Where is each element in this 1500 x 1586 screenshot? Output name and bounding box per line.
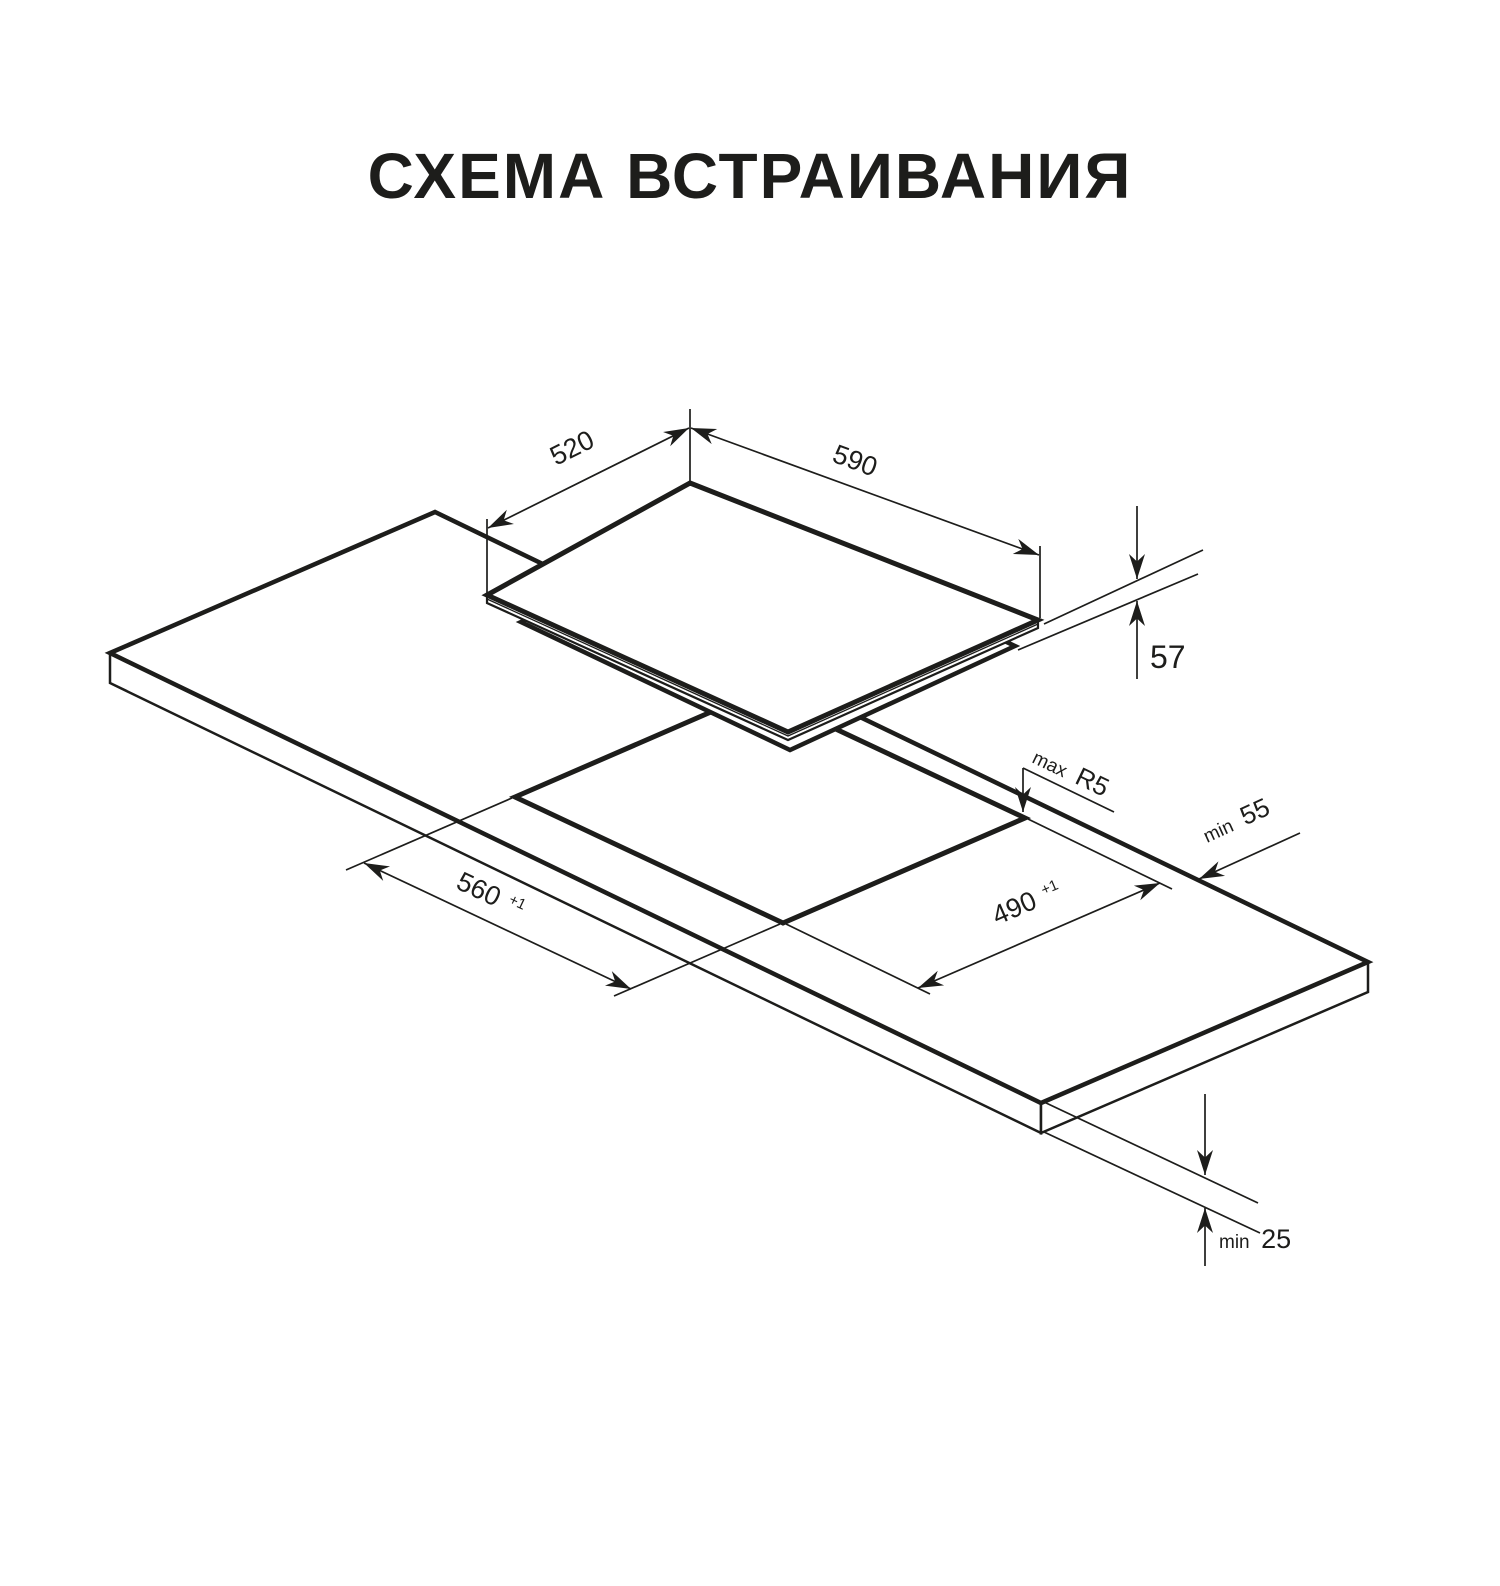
dim-maxr5-label: max R5 (1028, 740, 1114, 802)
installation-scheme-page: СХЕМА ВСТРАИВАНИЯ (0, 0, 1500, 1586)
page-title: СХЕМА ВСТРАИВАНИЯ (368, 140, 1133, 212)
dim-57-extension-top (1044, 550, 1203, 624)
dim-57-label: 57 (1150, 639, 1186, 675)
dim-590-label: 590 (829, 439, 882, 483)
installation-diagram: СХЕМА ВСТРАИВАНИЯ (0, 0, 1500, 1586)
dim-min25-label: min 25 (1219, 1224, 1291, 1254)
dim-min55-label: min 55 (1197, 792, 1274, 849)
dim-520-label: 520 (545, 424, 599, 471)
dim-min25-extension-a (1044, 1102, 1258, 1203)
dim-min25-extension-b (1044, 1132, 1260, 1233)
